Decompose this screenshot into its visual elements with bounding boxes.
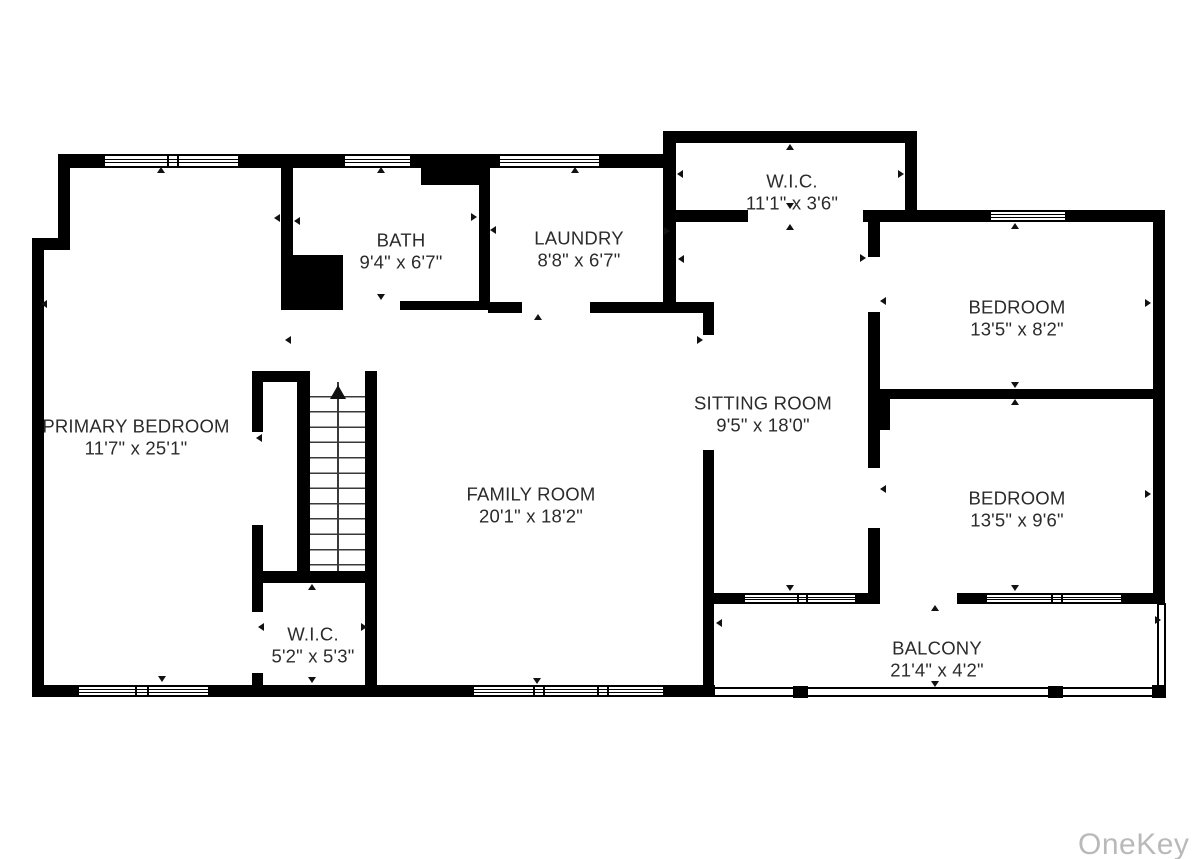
- room-dimensions: 5'2" x 5'3": [271, 645, 354, 667]
- dimension-arrow-icon: [678, 255, 684, 263]
- room-name: FAMILY ROOM: [467, 484, 596, 505]
- dimension-arrow-icon: [157, 167, 165, 173]
- room-label-primary-bedroom: PRIMARY BEDROOM 11'7" x 25'1": [42, 416, 229, 459]
- dimension-arrow-icon: [294, 217, 300, 225]
- dimension-arrow-icon: [1145, 490, 1151, 498]
- window: [472, 685, 665, 697]
- wall: [281, 154, 293, 255]
- dimension-arrow-icon: [258, 623, 264, 631]
- window-mullion: [167, 156, 169, 166]
- window: [985, 593, 1123, 604]
- room-label-balcony: BALCONY 21'4" x 4'2": [890, 638, 984, 681]
- wall: [868, 528, 880, 603]
- wall: [857, 593, 880, 604]
- dimension-arrow-icon: [41, 300, 47, 308]
- window: [343, 154, 412, 168]
- window-mullion: [806, 595, 808, 602]
- dimension-arrow-icon: [533, 678, 541, 684]
- dimension-arrow-icon: [308, 584, 316, 590]
- dimension-arrow-icon: [880, 485, 886, 493]
- dimension-arrow-icon: [1155, 616, 1161, 624]
- room-name: BEDROOM: [969, 488, 1066, 509]
- dimension-arrow-icon: [274, 214, 280, 222]
- dimension-arrow-icon: [1011, 585, 1019, 591]
- window-mullion: [797, 595, 799, 602]
- wall: [663, 131, 917, 143]
- room-label-bedroom-2: BEDROOM 13'5" x 9'6": [969, 488, 1066, 531]
- window-mullion: [543, 687, 545, 695]
- dimension-arrow-icon: [898, 170, 904, 178]
- room-dimensions: 11'7" x 25'1": [42, 437, 229, 459]
- window-mullion: [1051, 595, 1053, 602]
- room-name: PRIMARY BEDROOM: [42, 416, 229, 437]
- room-name: W.I.C.: [287, 624, 339, 645]
- wall: [663, 131, 676, 313]
- dimension-arrow-icon: [664, 227, 670, 235]
- balcony-post: [793, 686, 808, 698]
- wall: [703, 450, 714, 697]
- window: [77, 685, 210, 697]
- wall: [905, 131, 917, 222]
- wall: [252, 571, 377, 583]
- room-dimensions: 9'4" x 6'7": [359, 251, 442, 273]
- wall: [868, 222, 880, 257]
- room-dimensions: 9'5" x 18'0": [694, 414, 832, 436]
- room-name: SITTING ROOM: [694, 393, 832, 414]
- wall: [421, 162, 479, 185]
- room-name: W.I.C.: [766, 171, 818, 192]
- wall: [868, 389, 1153, 399]
- dimension-arrow-icon: [1011, 399, 1019, 405]
- dimension-arrow-icon: [860, 254, 866, 262]
- wall: [252, 525, 263, 612]
- room-name: BATH: [377, 230, 426, 251]
- dimension-arrow-icon: [786, 144, 794, 150]
- room-label-family-room: FAMILY ROOM 20'1" x 18'2": [467, 484, 596, 527]
- window-mullion: [607, 687, 609, 695]
- wall: [590, 302, 712, 313]
- wall: [58, 154, 70, 250]
- window: [498, 154, 601, 168]
- dimension-arrow-icon: [377, 294, 385, 300]
- staircase-centerline: [337, 382, 339, 571]
- wall: [1123, 593, 1157, 604]
- dimension-arrow-icon: [931, 681, 939, 687]
- window: [989, 210, 1067, 222]
- dimension-arrow-icon: [490, 226, 496, 234]
- dimension-arrow-icon: [697, 336, 703, 344]
- room-label-bath: BATH 9'4" x 6'7": [359, 230, 442, 273]
- watermark: OneKey MLS: [1078, 828, 1200, 859]
- window-mullion: [597, 687, 599, 695]
- room-dimensions: 13'5" x 8'2": [969, 318, 1066, 340]
- room-dimensions: 8'8" x 6'7": [534, 249, 623, 271]
- wall: [252, 371, 263, 432]
- floor-plan: PRIMARY BEDROOM 11'7" x 25'1" BATH 9'4" …: [0, 0, 1200, 859]
- dimension-arrow-icon: [377, 167, 385, 173]
- dimension-arrow-icon: [931, 605, 939, 611]
- balcony-post: [1048, 686, 1063, 698]
- dimension-arrow-icon: [308, 677, 316, 683]
- room-name: BALCONY: [892, 638, 982, 659]
- dimension-arrow-icon: [158, 676, 166, 682]
- window-mullion: [135, 687, 137, 695]
- room-label-sitting-room: SITTING ROOM 9'5" x 18'0": [694, 393, 832, 436]
- room-dimensions: 13'5" x 9'6": [969, 509, 1066, 531]
- wall: [868, 312, 880, 468]
- wall: [1153, 210, 1165, 603]
- wall: [365, 371, 377, 685]
- wall: [400, 301, 479, 310]
- window-mullion: [1061, 595, 1063, 602]
- wall: [488, 302, 522, 313]
- dimension-arrow-icon: [1011, 382, 1019, 388]
- wall: [676, 210, 748, 222]
- room-label-bedroom-1: BEDROOM 13'5" x 8'2": [969, 297, 1066, 340]
- wall: [957, 593, 985, 604]
- dimension-arrow-icon: [786, 224, 794, 230]
- wall: [479, 162, 490, 310]
- room-dimensions: 20'1" x 18'2": [467, 505, 596, 527]
- wall: [703, 302, 714, 335]
- window: [743, 593, 857, 604]
- stairs-up-arrow-icon: [330, 385, 346, 399]
- dimension-arrow-icon: [786, 203, 794, 209]
- room-name: LAUNDRY: [534, 228, 623, 249]
- wall: [297, 382, 310, 578]
- chimney-block: [281, 255, 343, 310]
- room-dimensions: 21'4" x 4'2": [890, 659, 984, 681]
- dimension-arrow-icon: [880, 297, 886, 305]
- dimension-arrow-icon: [1011, 223, 1019, 229]
- dimension-arrow-icon: [571, 167, 579, 173]
- dimension-arrow-icon: [471, 213, 477, 221]
- dimension-arrow-icon: [285, 336, 291, 344]
- room-label-laundry: LAUNDRY 8'8" x 6'7": [534, 228, 623, 271]
- dimension-arrow-icon: [256, 434, 262, 442]
- room-name: BEDROOM: [969, 297, 1066, 318]
- dimension-arrow-icon: [1145, 299, 1151, 307]
- dimension-arrow-icon: [677, 170, 683, 178]
- dimension-arrow-icon: [534, 314, 542, 320]
- room-label-wic-small: W.I.C. 5'2" x 5'3": [271, 624, 354, 667]
- window: [103, 154, 240, 168]
- wall: [252, 673, 263, 685]
- window-mullion: [177, 156, 179, 166]
- window-mullion: [533, 687, 535, 695]
- balcony-post: [1152, 685, 1166, 698]
- window-mullion: [147, 687, 149, 695]
- dimension-arrow-icon: [361, 623, 367, 631]
- dimension-arrow-icon: [786, 585, 794, 591]
- balcony-railing: [715, 687, 1166, 697]
- dimension-arrow-icon: [716, 619, 722, 627]
